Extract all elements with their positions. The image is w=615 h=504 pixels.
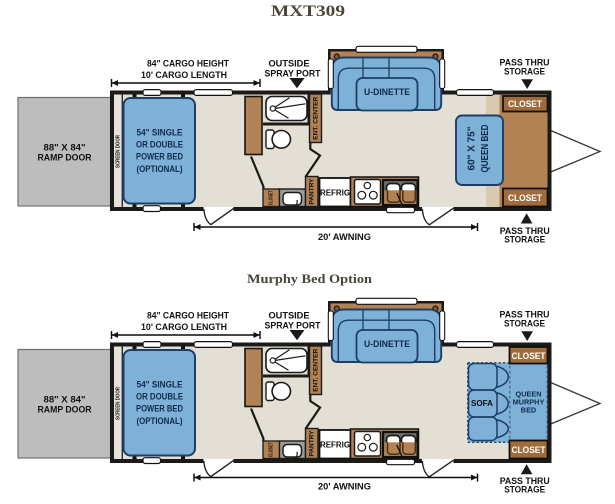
svg-text:POWER BED: POWER BED bbox=[136, 404, 183, 415]
svg-text:RAMP DOOR: RAMP DOOR bbox=[38, 405, 92, 415]
svg-text:Murphy Bed Option: Murphy Bed Option bbox=[247, 272, 372, 286]
svg-text:ENT. CENTER: ENT. CENTER bbox=[312, 97, 319, 140]
svg-text:REFRIG: REFRIG bbox=[320, 188, 350, 197]
svg-text:(OPTIONAL): (OPTIONAL) bbox=[137, 164, 183, 175]
svg-text:ENT. CENTER: ENT. CENTER bbox=[312, 349, 319, 392]
svg-text:54" SINGLE: 54" SINGLE bbox=[137, 379, 183, 390]
svg-text:SPRAY PORT: SPRAY PORT bbox=[265, 321, 321, 332]
svg-text:CLOSET: CLOSET bbox=[508, 99, 542, 109]
svg-text:84" CARGO HEIGHT: 84" CARGO HEIGHT bbox=[147, 59, 229, 70]
svg-text:OR DOUBLE: OR DOUBLE bbox=[136, 140, 183, 151]
svg-text:SCREEN DOOR: SCREEN DOOR bbox=[115, 135, 121, 168]
svg-text:20' AWNING: 20' AWNING bbox=[318, 232, 371, 243]
svg-text:20' AWNING: 20' AWNING bbox=[318, 482, 371, 493]
svg-text:88" X 84": 88" X 84" bbox=[44, 143, 86, 153]
svg-text:SOFA: SOFA bbox=[471, 399, 493, 408]
svg-text:(OPTIONAL): (OPTIONAL) bbox=[137, 416, 183, 427]
svg-text:10' CARGO LENGTH: 10' CARGO LENGTH bbox=[141, 70, 227, 81]
svg-text:CLOSET: CLOSET bbox=[269, 190, 275, 206]
svg-text:STORAGE: STORAGE bbox=[504, 319, 545, 330]
svg-text:60" X 75": 60" X 75" bbox=[466, 126, 477, 170]
svg-text:STORAGE: STORAGE bbox=[504, 67, 545, 78]
svg-text:U-DINETTE: U-DINETTE bbox=[364, 87, 410, 97]
svg-text:OR DOUBLE: OR DOUBLE bbox=[136, 392, 183, 403]
svg-text:CLOSET: CLOSET bbox=[508, 193, 542, 203]
svg-text:MXT309: MXT309 bbox=[271, 3, 345, 20]
svg-text:RAMP DOOR: RAMP DOOR bbox=[38, 153, 92, 163]
svg-text:U-DINETTE: U-DINETTE bbox=[364, 339, 410, 349]
svg-text:10' CARGO LENGTH: 10' CARGO LENGTH bbox=[141, 322, 227, 333]
svg-text:REFRIG: REFRIG bbox=[320, 440, 350, 449]
svg-text:54" SINGLE: 54" SINGLE bbox=[137, 127, 183, 138]
svg-text:PANTRY: PANTRY bbox=[309, 178, 316, 205]
svg-text:88" X 84": 88" X 84" bbox=[44, 395, 86, 405]
svg-text:CLOSET: CLOSET bbox=[512, 445, 546, 455]
svg-text:STORAGE: STORAGE bbox=[504, 235, 545, 246]
svg-text:POWER BED: POWER BED bbox=[136, 152, 183, 163]
svg-text:84" CARGO HEIGHT: 84" CARGO HEIGHT bbox=[147, 311, 229, 322]
svg-text:CLOSET: CLOSET bbox=[512, 351, 546, 361]
svg-text:PANTRY: PANTRY bbox=[309, 430, 316, 457]
svg-text:QUEEN BED: QUEEN BED bbox=[480, 125, 491, 173]
svg-text:SPRAY PORT: SPRAY PORT bbox=[265, 69, 321, 80]
svg-text:STORAGE: STORAGE bbox=[504, 485, 545, 496]
svg-text:CLOSET: CLOSET bbox=[269, 442, 275, 458]
svg-text:BED: BED bbox=[521, 405, 536, 414]
svg-text:SCREEN DOOR: SCREEN DOOR bbox=[115, 387, 121, 420]
